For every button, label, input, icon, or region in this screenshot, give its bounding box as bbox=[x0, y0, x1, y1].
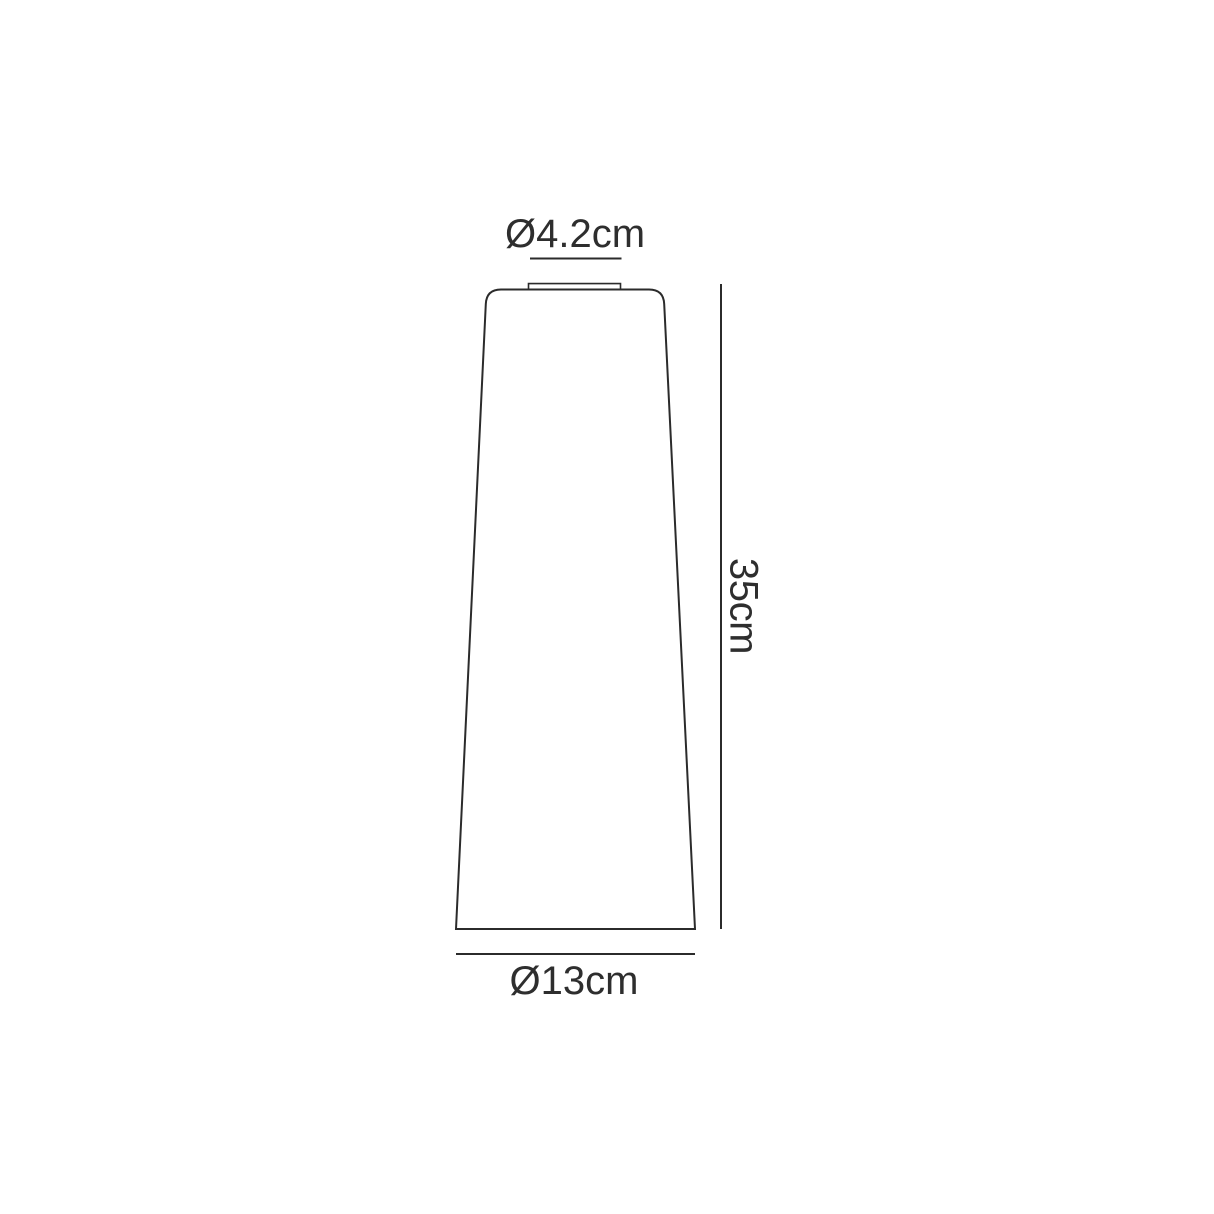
svg-text:Ø13cm: Ø13cm bbox=[510, 959, 639, 1003]
svg-text:Ø4.2cm: Ø4.2cm bbox=[505, 212, 645, 256]
svg-text:35cm: 35cm bbox=[722, 558, 766, 654]
